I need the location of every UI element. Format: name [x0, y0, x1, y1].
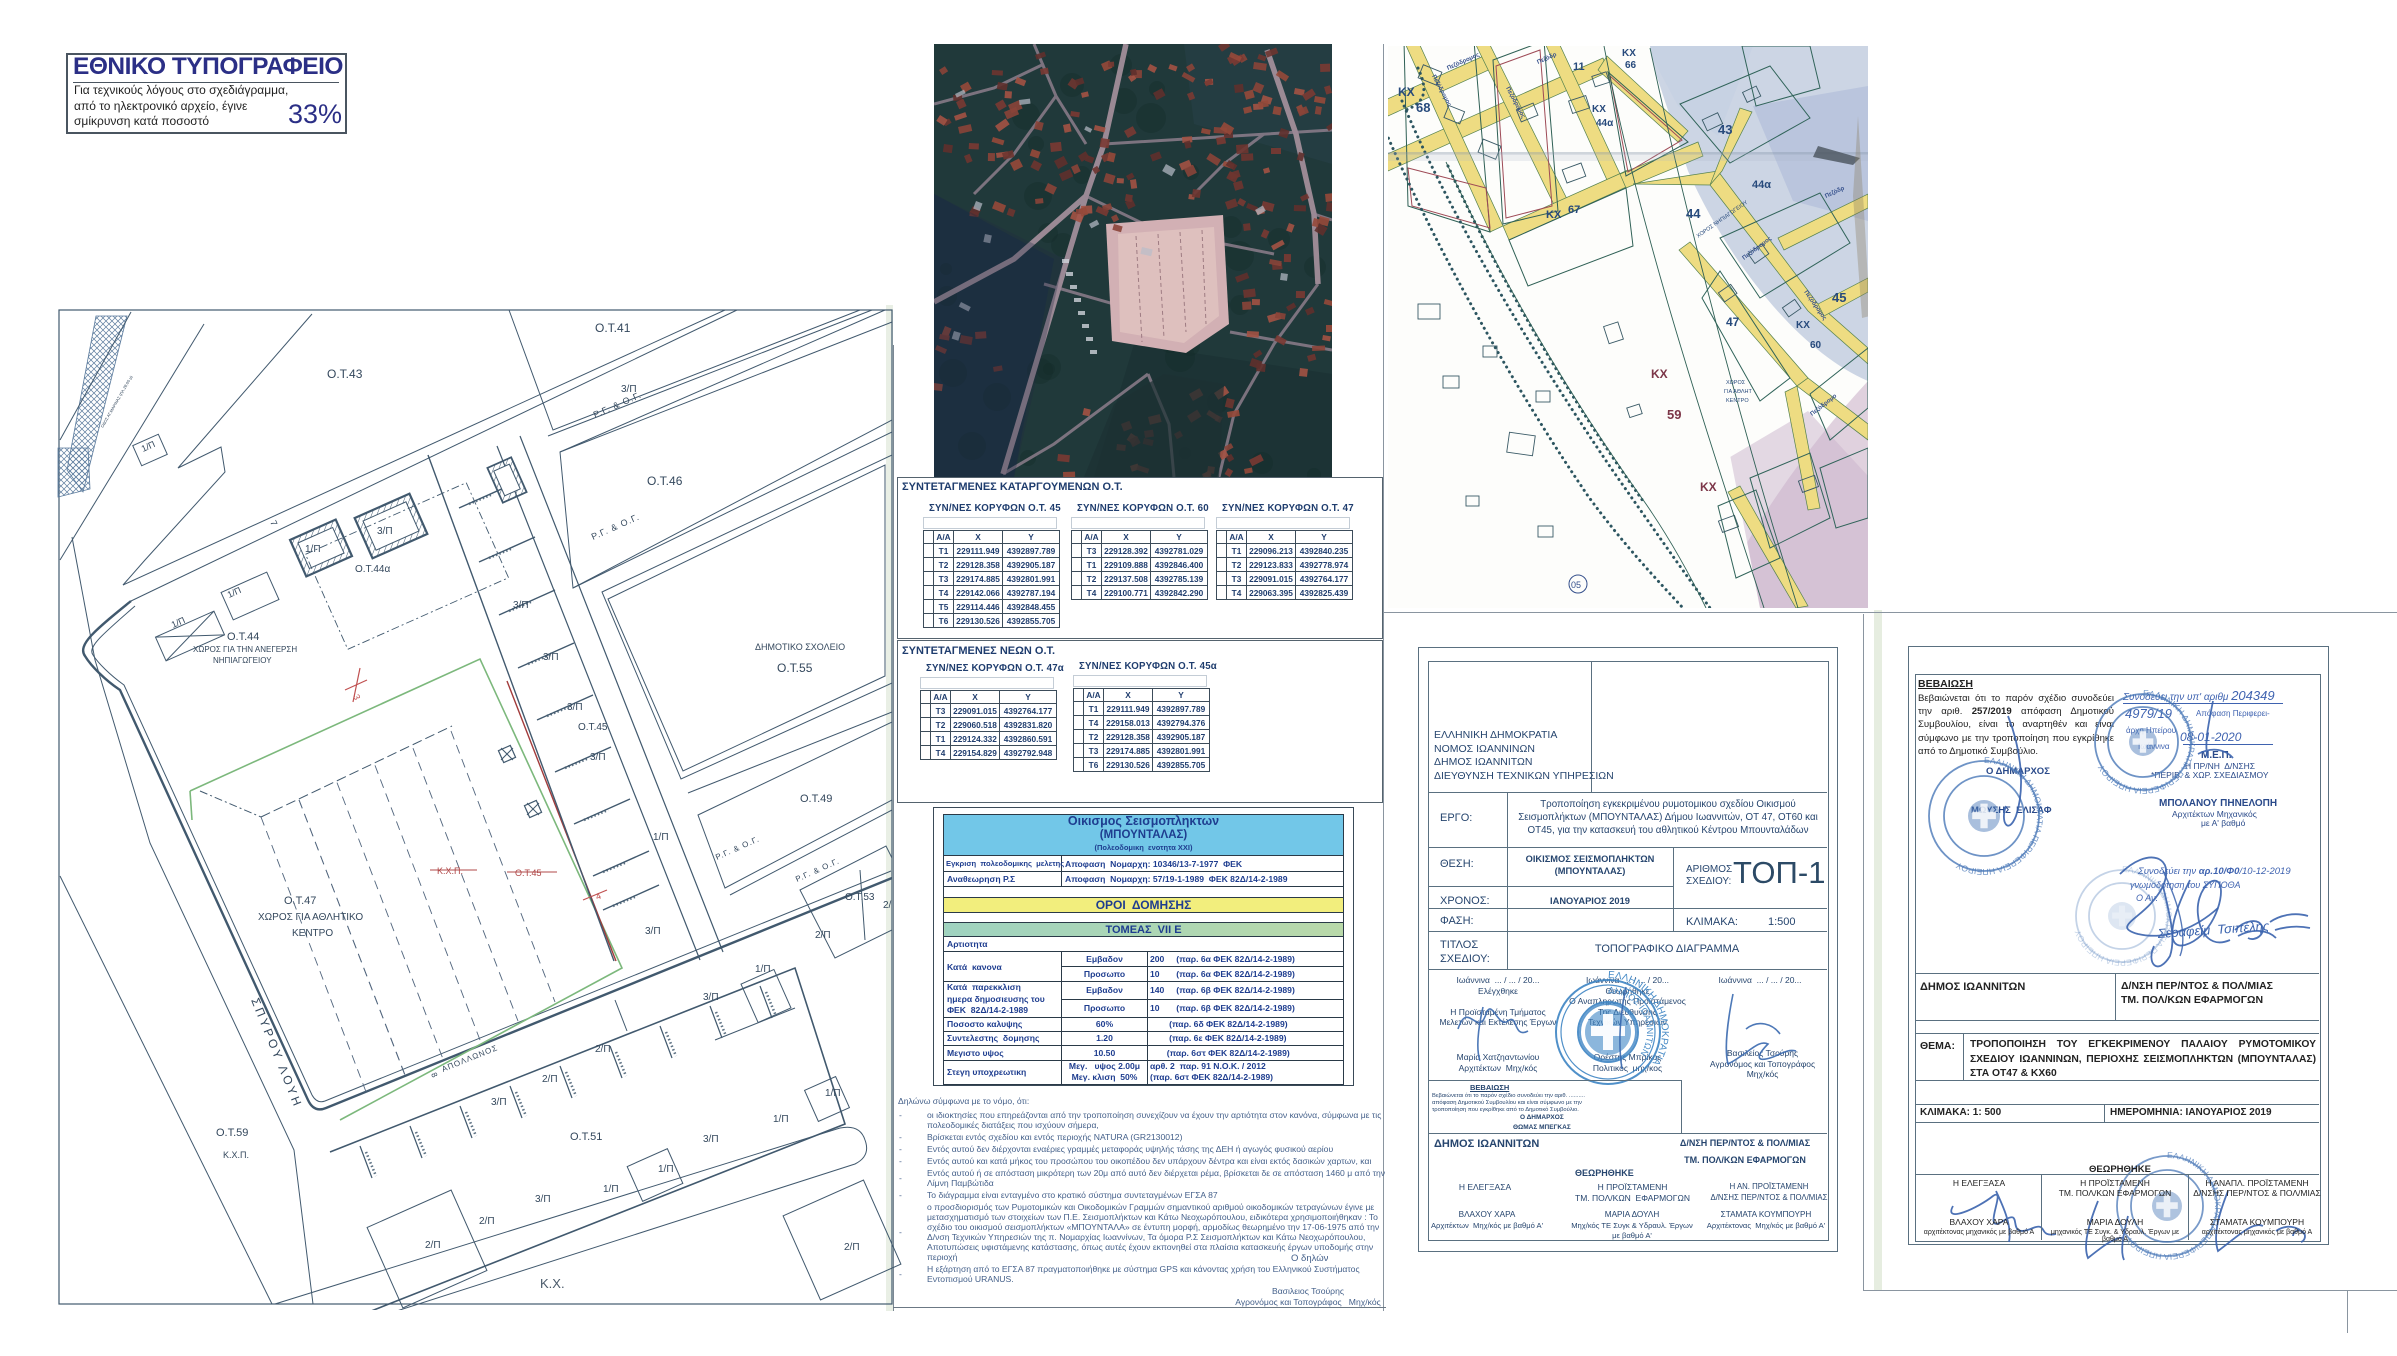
svg-text:ΧΩΡΟΣ ΓΙΑ ΤΗΝ ΑΝΕΓΕΡΣΗ: ΧΩΡΟΣ ΓΙΑ ΤΗΝ ΑΝΕΓΕΡΣΗ	[193, 645, 297, 654]
svg-text:ΧΩΡΟΣ ΓΙΑ ΑΘΛΗΤΙΚΟ: ΧΩΡΟΣ ΓΙΑ ΑΘΛΗΤΙΚΟ	[258, 912, 363, 923]
svg-text:ΣΠΥΡΟΥ ΛΟΥΗ: ΣΠΥΡΟΥ ΛΟΥΗ	[248, 996, 305, 1111]
svg-text:2/Π: 2/Π	[595, 1044, 611, 1055]
svg-text:3/Π: 3/Π	[590, 752, 606, 763]
svg-text:ΝΗΠΙΑΓΩΓΕΙΟΥ: ΝΗΠΙΑΓΩΓΕΙΟΥ	[213, 656, 272, 665]
svg-text:ΚΕΝΤΡΟ: ΚΕΝΤΡΟ	[1726, 398, 1749, 404]
svg-text:Ρ.Γ. & Ο.Γ.: Ρ.Γ. & Ο.Γ.	[590, 512, 641, 542]
svg-text:Ο.Τ.59: Ο.Τ.59	[216, 1127, 248, 1139]
svg-text:ΓΙΑ ΑΘΛΗΤ: ΓΙΑ ΑΘΛΗΤ	[1724, 389, 1753, 395]
svg-text:3/Π: 3/Π	[703, 992, 719, 1003]
svg-text:2/Π: 2/Π	[844, 1242, 860, 1253]
svg-text:Ο.Τ.41: Ο.Τ.41	[595, 321, 631, 335]
svg-text:Ο.Τ.44α: Ο.Τ.44α	[355, 564, 390, 575]
svg-text:44α: 44α	[1596, 118, 1614, 129]
svg-text:66: 66	[1625, 60, 1637, 71]
svg-text:3/Π: 3/Π	[491, 1097, 507, 1108]
svg-text:3/Π: 3/Π	[377, 526, 393, 537]
svg-text:ΚΕΝΤΡΟ: ΚΕΝΤΡΟ	[292, 928, 333, 939]
svg-text:2/Π: 2/Π	[425, 1240, 441, 1251]
svg-text:Κ.Χ.: Κ.Χ.	[540, 1276, 565, 1291]
svg-text:Ο.Τ.55: Ο.Τ.55	[777, 661, 813, 675]
svg-text:1/Π: 1/Π	[825, 1088, 841, 1099]
svg-text:2/Π: 2/Π	[542, 1074, 558, 1085]
svg-text:3/Π: 3/Π	[703, 1134, 719, 1145]
svg-text:Ο.Τ.45: Ο.Τ.45	[515, 868, 542, 878]
svg-text:Ο.Τ.46: Ο.Τ.46	[647, 474, 683, 488]
svg-text:1/Π: 1/Π	[658, 1164, 674, 1175]
svg-text:2/Π: 2/Π	[479, 1216, 495, 1227]
svg-text:ΚΧ: ΚΧ	[1398, 85, 1415, 99]
svg-text:59: 59	[1667, 407, 1681, 422]
svg-text:7: 7	[268, 519, 279, 528]
svg-text:1/Π: 1/Π	[226, 585, 243, 600]
svg-text:1/Π: 1/Π	[603, 1184, 619, 1195]
svg-text:11: 11	[1573, 61, 1585, 73]
svg-text:1/Π: 1/Π	[170, 615, 187, 630]
svg-text:1/Π: 1/Π	[773, 1114, 789, 1125]
svg-text:Ο.Τ.49: Ο.Τ.49	[800, 793, 832, 805]
svg-text:ΚΧ: ΚΧ	[1546, 209, 1562, 221]
svg-text:8: 8	[429, 1071, 439, 1079]
svg-text:1/Π: 1/Π	[755, 964, 771, 975]
svg-text:44: 44	[1686, 206, 1701, 221]
svg-text:44α: 44α	[1752, 179, 1771, 191]
svg-text:2/: 2/	[883, 900, 892, 911]
svg-text:3: 3	[351, 693, 362, 702]
svg-text:47: 47	[1726, 315, 1740, 329]
svg-text:43: 43	[1718, 122, 1732, 137]
svg-text:ΚΧ: ΚΧ	[1622, 48, 1636, 59]
svg-text:ΚΧ: ΚΧ	[1700, 480, 1717, 494]
svg-text:3/Π: 3/Π	[645, 926, 661, 937]
svg-text:Ο.Τ.43: Ο.Τ.43	[327, 367, 363, 381]
svg-text:Ρ.Γ. & Ο.Γ.: Ρ.Γ. & Ο.Γ.	[714, 834, 761, 861]
svg-text:ΚΧ: ΚΧ	[1796, 320, 1810, 331]
svg-text:05: 05	[1571, 580, 1581, 590]
svg-text:Ο.Τ.47: Ο.Τ.47	[284, 895, 316, 907]
svg-text:3/Π: 3/Π	[543, 652, 559, 663]
svg-text:3/Π: 3/Π	[621, 384, 637, 395]
svg-text:Ο.Τ.51: Ο.Τ.51	[570, 1131, 602, 1143]
svg-text:ΚΧ: ΚΧ	[1592, 104, 1606, 115]
svg-text:ΚΧ: ΚΧ	[1651, 367, 1668, 381]
svg-text:1/Π: 1/Π	[305, 544, 321, 555]
svg-text:Ο.Τ.44: Ο.Τ.44	[227, 631, 259, 643]
svg-text:2/Π: 2/Π	[815, 930, 831, 941]
svg-text:ΧΩΡΟΣ: ΧΩΡΟΣ	[1726, 380, 1746, 386]
svg-text:ΔΗΜΟΤΙΚΟ ΣΧΟΛΕΙΟ: ΔΗΜΟΤΙΚΟ ΣΧΟΛΕΙΟ	[755, 642, 845, 652]
svg-text:Ο.Τ.45: Ο.Τ.45	[578, 722, 608, 733]
svg-text:Ρ.Γ. & Ο.Γ.: Ρ.Γ. & Ο.Γ.	[794, 856, 841, 883]
svg-text:3/Π: 3/Π	[513, 600, 529, 611]
svg-text:1/Π: 1/Π	[653, 832, 669, 843]
svg-text:68: 68	[1416, 100, 1430, 115]
svg-text:45: 45	[1832, 290, 1846, 305]
svg-text:3/Π: 3/Π	[567, 702, 583, 713]
svg-text:60: 60	[1810, 340, 1822, 351]
svg-text:Κ.Χ.Π.: Κ.Χ.Π.	[437, 866, 463, 876]
svg-text:67: 67	[1568, 204, 1580, 216]
svg-text:Ο.Τ.53: Ο.Τ.53	[845, 892, 875, 903]
svg-text:3/Π: 3/Π	[535, 1194, 551, 1205]
svg-text:Κ.Χ.Π.: Κ.Χ.Π.	[223, 1150, 249, 1160]
